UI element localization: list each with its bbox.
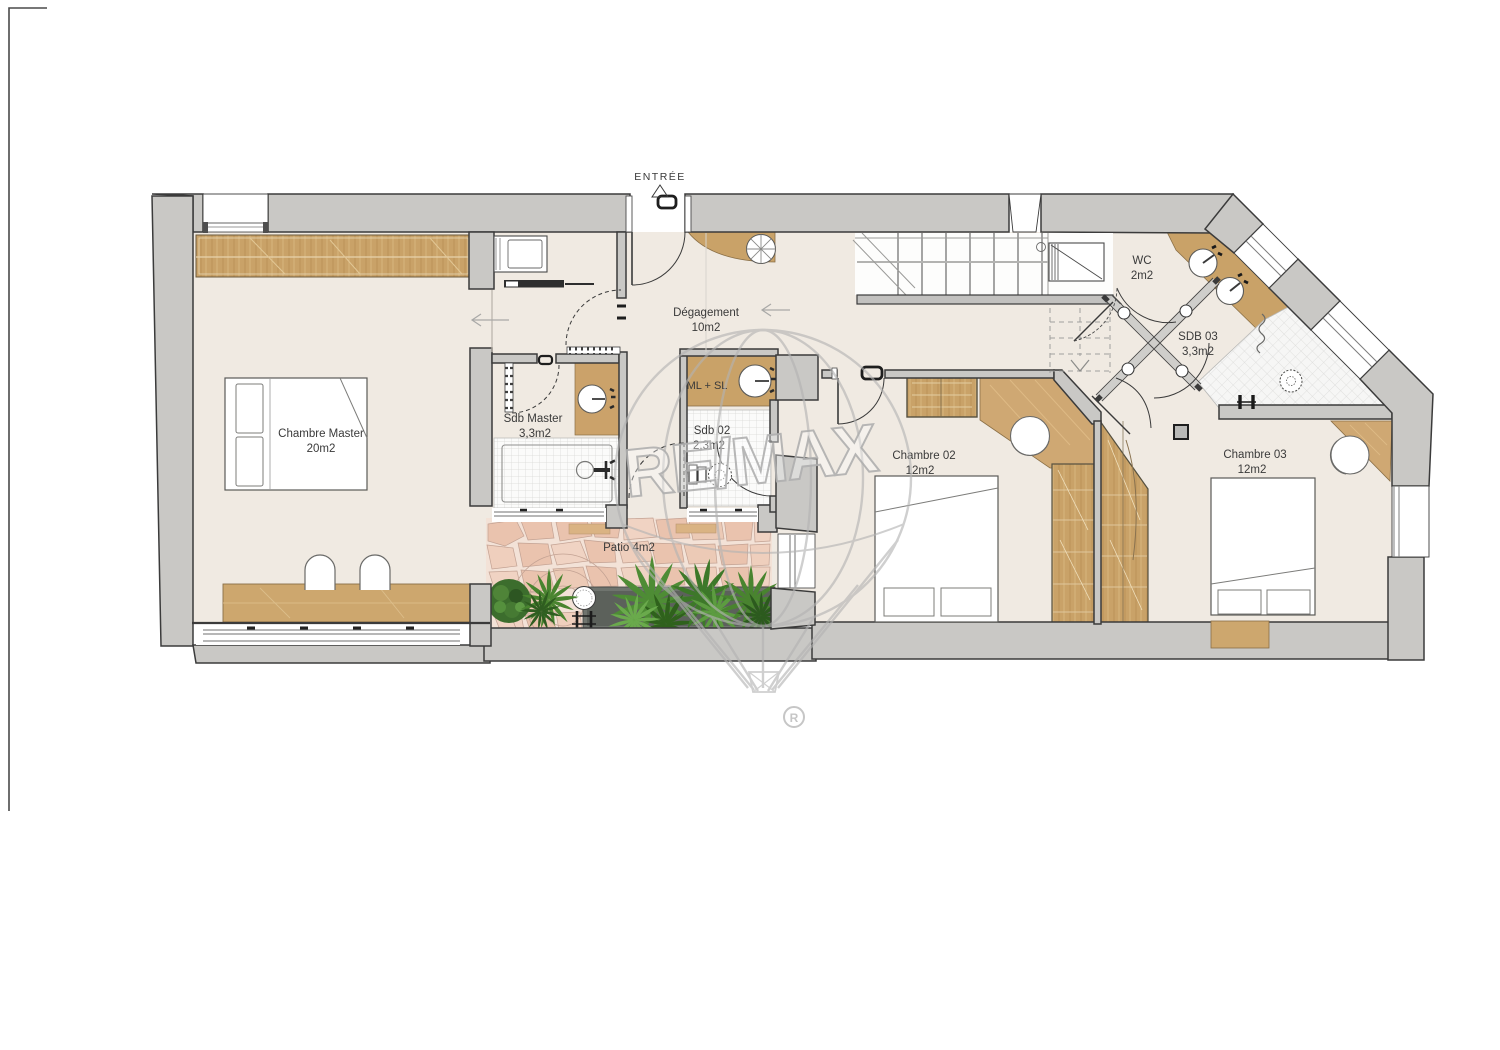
svg-text:SDB 03: SDB 03: [1178, 331, 1218, 343]
svg-text:Dégagement: Dégagement: [673, 307, 740, 319]
svg-text:Chambre 02: Chambre 02: [892, 450, 955, 462]
svg-text:Chambre Master: Chambre Master: [278, 428, 364, 440]
svg-text:2m2: 2m2: [1131, 270, 1153, 282]
svg-text:ML + SL: ML + SL: [687, 380, 728, 392]
svg-text:Patio 4m2: Patio 4m2: [603, 542, 655, 554]
svg-text:Sdb Master: Sdb Master: [504, 413, 563, 425]
svg-text:ENTRÉE: ENTRÉE: [634, 170, 686, 183]
svg-text:20m2: 20m2: [307, 443, 336, 455]
svg-text:10m2: 10m2: [692, 322, 721, 334]
svg-text:12m2: 12m2: [1238, 464, 1267, 476]
svg-text:3,3m2: 3,3m2: [1182, 346, 1214, 358]
svg-text:3,3m2: 3,3m2: [519, 428, 551, 440]
svg-text:R: R: [790, 711, 799, 725]
svg-text:WC: WC: [1132, 255, 1151, 267]
svg-text:Chambre 03: Chambre 03: [1223, 449, 1286, 461]
